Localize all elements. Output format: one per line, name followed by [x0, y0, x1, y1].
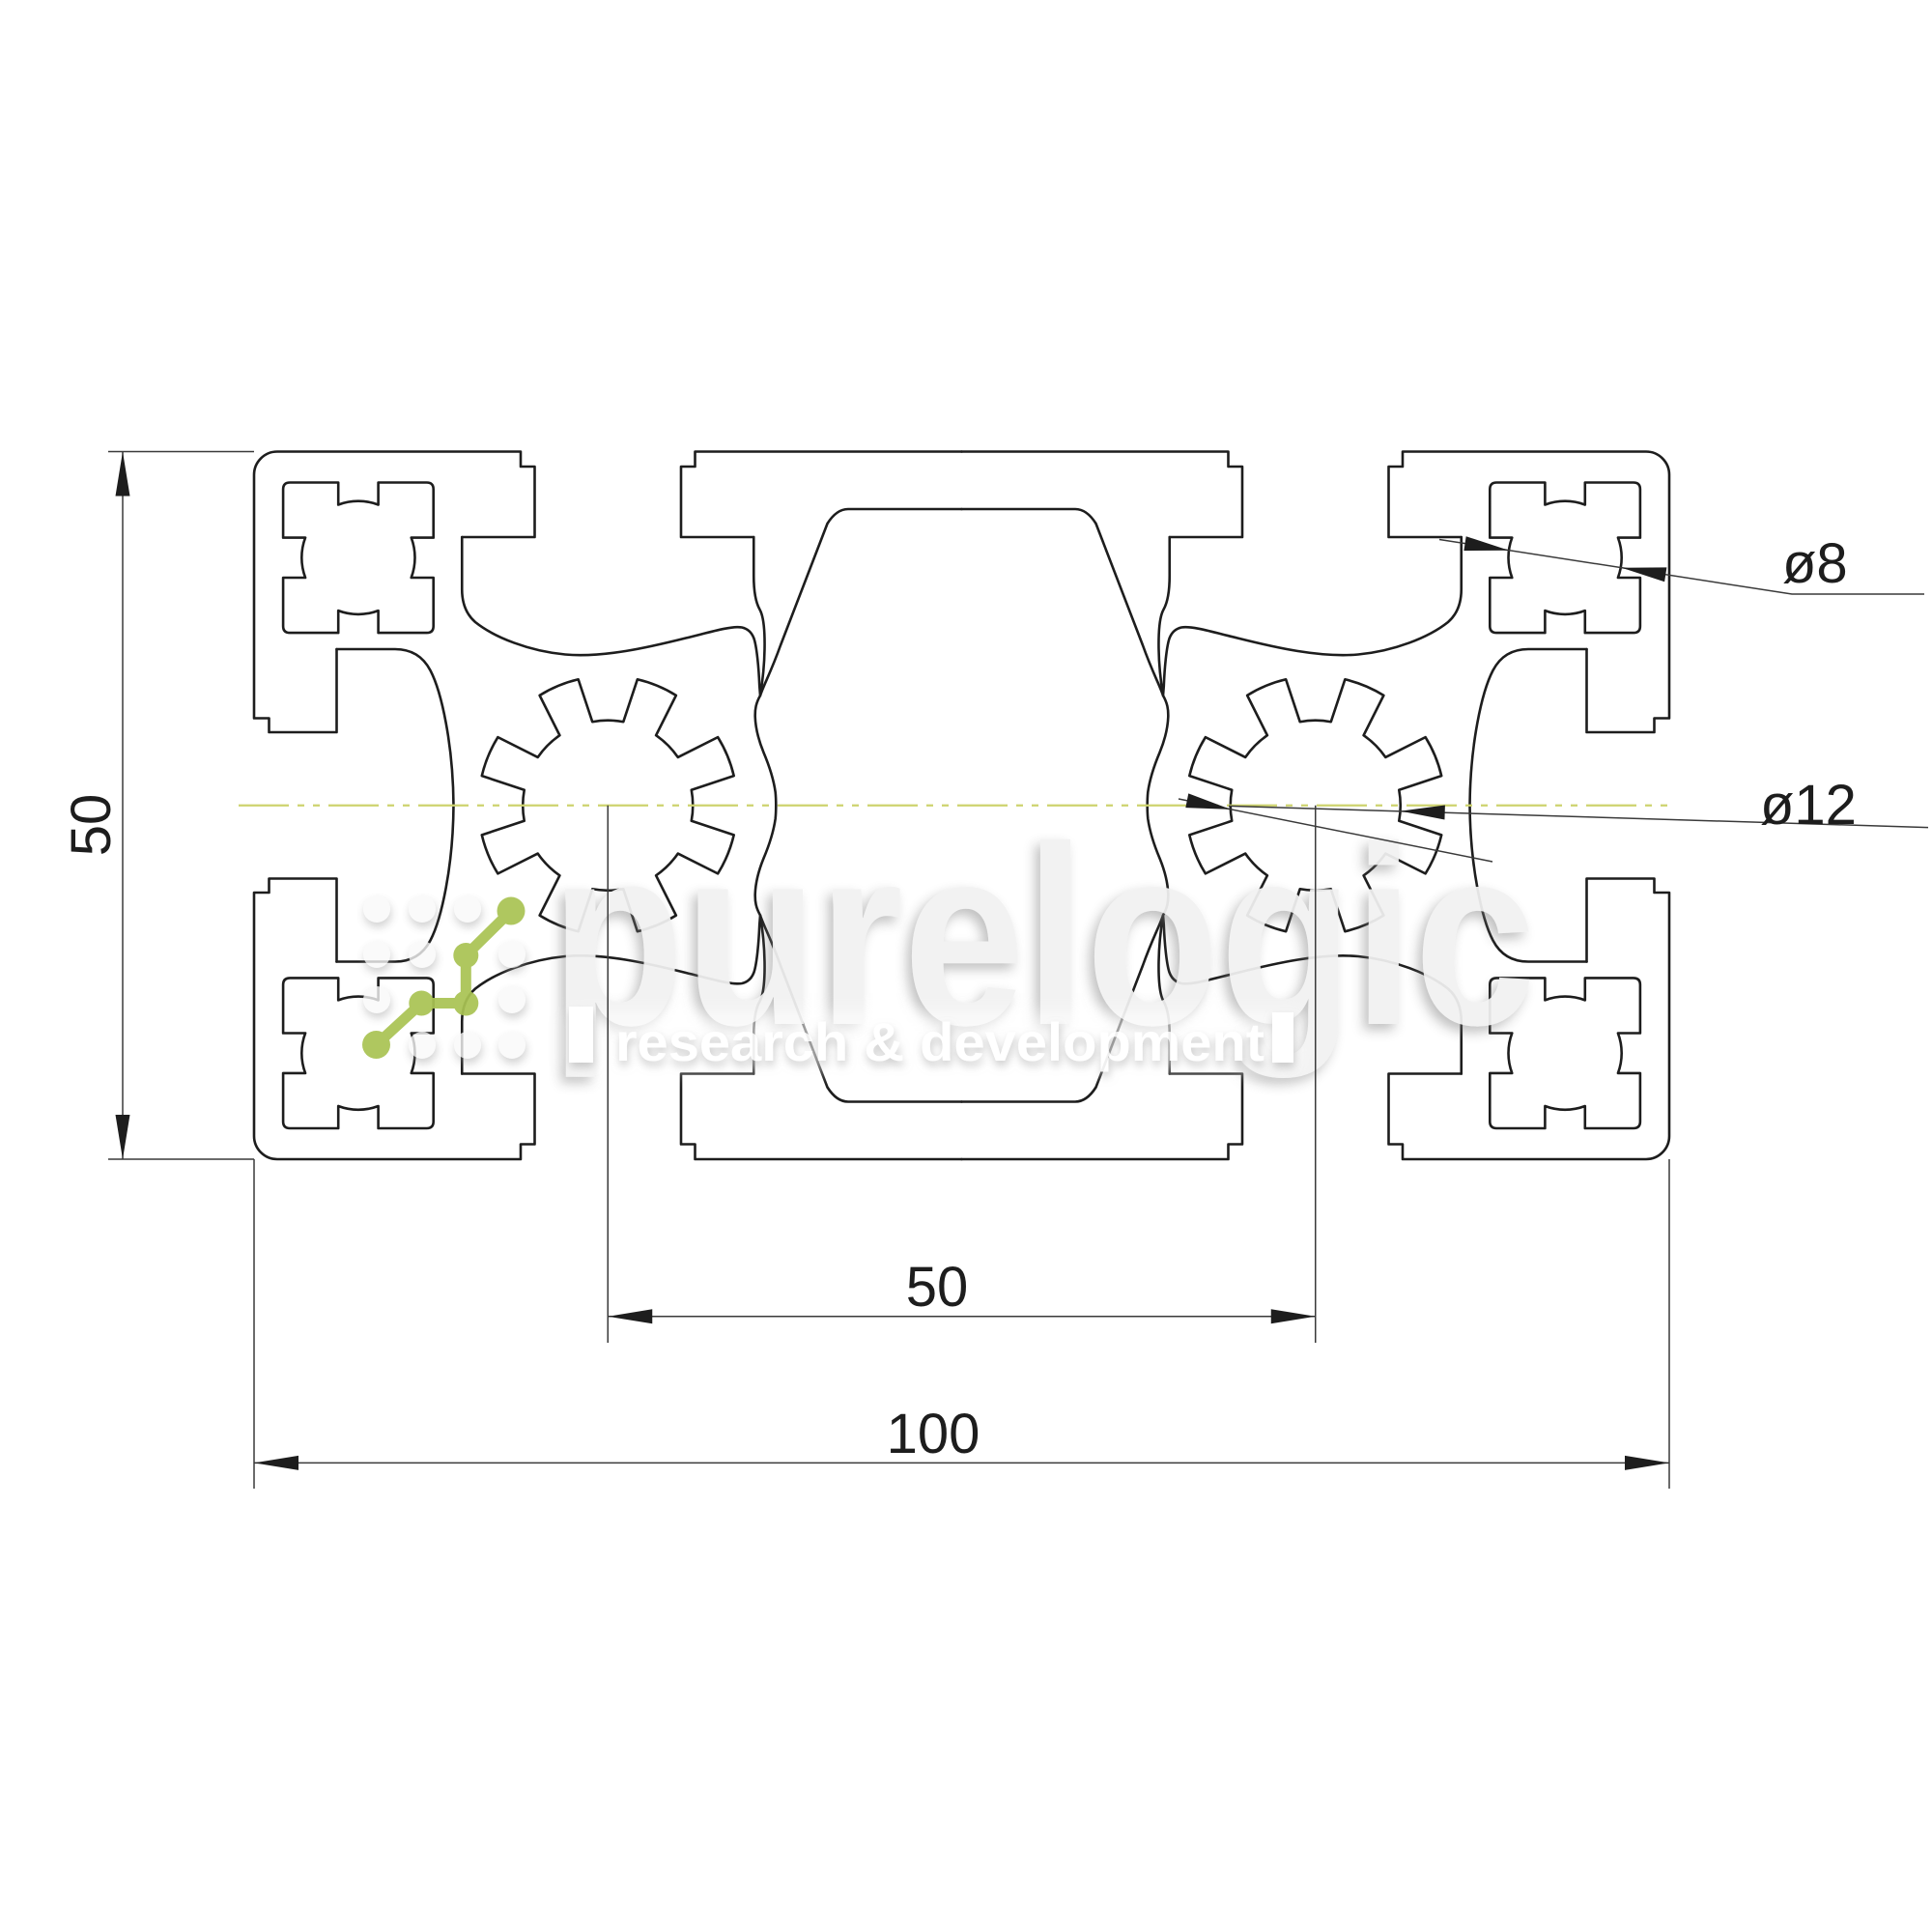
svg-text:ø8: ø8	[1782, 532, 1848, 595]
svg-text:100: 100	[887, 1403, 980, 1465]
svg-text:50: 50	[906, 1256, 969, 1319]
svg-text:research & development: research & development	[615, 1011, 1264, 1072]
svg-text:50: 50	[60, 794, 123, 857]
svg-text:ø12: ø12	[1760, 774, 1857, 837]
